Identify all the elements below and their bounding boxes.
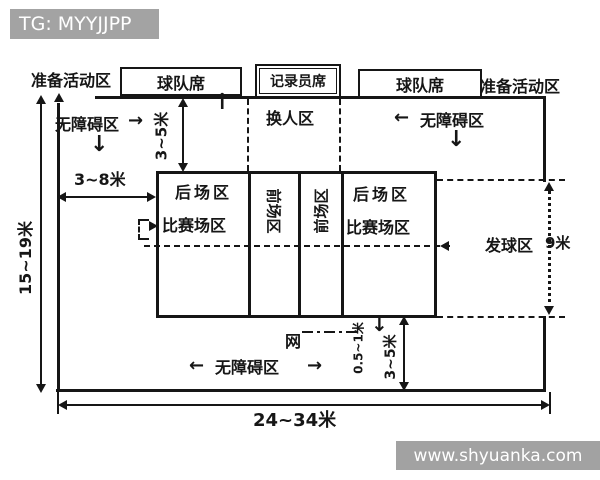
side-freezone-dimension-label: 3~8米 (74, 166, 126, 190)
axis-arrow-right-icon (440, 241, 449, 251)
side-freezone-dimension-line (60, 196, 154, 198)
watermark-bar: www.shyuanka.com (396, 441, 600, 470)
length-dimension-label: 24~34米 (247, 406, 342, 432)
service-zone-dashed-top (437, 179, 565, 181)
playing-court-label-right: 比赛场区 (346, 214, 410, 238)
side-dim-arrow-right-icon (147, 192, 156, 202)
front-zone-label-left: 前场区 (264, 188, 285, 233)
court-axis-dashed-line (144, 245, 450, 247)
outer-boundary-bottom (56, 389, 546, 392)
bottom-dim-arrow-up-icon (399, 316, 409, 325)
side-dim-arrow-left-icon (57, 192, 66, 202)
outer-boundary-left (57, 103, 60, 391)
outer-boundary-right-lower (543, 316, 546, 392)
free-zone-label-bottom: 无障碍区 (215, 354, 279, 378)
width-dimension-arrow-top-icon (36, 95, 46, 104)
bottom-dim-arrow-down-icon (399, 382, 409, 391)
front-zone-label-right: 前场区 (311, 188, 332, 233)
service-dim-arrow-up-icon (544, 182, 554, 191)
substitution-zone-line-right (339, 99, 341, 171)
substitution-zone-line-left (247, 99, 249, 171)
corner-down-arrow-icon: ↓ (371, 312, 388, 336)
length-dim-arrow-right-icon (541, 400, 550, 410)
scorer-table-box: 记录员席 (255, 64, 341, 98)
service-zone-label: 发球区 (485, 232, 533, 256)
free-zone-label-left: 无障碍区 (55, 111, 119, 135)
boundary-corner-arrow-icon (54, 93, 64, 102)
team-bench-label-right: 球队席 (396, 72, 444, 96)
scorer-table-label: 记录员席 (259, 68, 337, 94)
right-arrow-icon: → (128, 110, 143, 131)
back-zone-label-right: 后场区 (353, 181, 410, 205)
net-label: 网 (285, 328, 301, 352)
top-dim-arrow-up-icon (178, 98, 188, 107)
bottom-freezone-dimension-label: 3~5米 (380, 334, 400, 379)
service-zone-dashed-bottom (437, 316, 565, 318)
title-bar: TG: MYYJJPP (10, 9, 159, 39)
length-dim-arrow-left-icon (58, 400, 67, 410)
back-zone-label-left: 后场区 (175, 179, 232, 203)
bench-pointer-arrow-icon: ↑ (213, 90, 231, 115)
top-freezone-dimension-line (182, 102, 184, 170)
down-arrow-left-icon: ↓ (90, 132, 108, 157)
outer-boundary-top (95, 96, 545, 99)
axis-arrow-left-icon (149, 221, 158, 231)
service-dim-arrow-down-icon (544, 306, 554, 315)
warmup-area-label-left: 准备活动区 (31, 67, 111, 91)
playing-court-label-left: 比赛场区 (162, 212, 226, 236)
axis-bracket-left (138, 219, 149, 240)
top-freezone-dimension-label: 3~5米 (151, 112, 172, 160)
net-overhang-label: 0.5~1米 (350, 322, 367, 374)
substitution-zone-label: 换人区 (266, 105, 314, 129)
bottom-freezone-dimension-line (403, 321, 405, 387)
width-dimension-label: 15~19米 (12, 221, 36, 295)
team-bench-label-left: 球队席 (157, 70, 205, 94)
left-arrow-icon: ← (394, 107, 409, 128)
width-dimension-arrow-bottom-icon (36, 384, 46, 393)
team-bench-box-right: 球队席 (358, 69, 482, 98)
service-depth-label: 9米 (545, 232, 570, 253)
warmup-area-label-right: 准备活动区 (480, 73, 560, 97)
down-arrow-right-icon: ↓ (447, 127, 465, 152)
bottom-right-arrow-icon: → (307, 355, 322, 376)
width-dimension-line (40, 103, 42, 385)
bottom-left-arrow-icon: ← (189, 355, 204, 376)
outer-boundary-right-upper (543, 96, 546, 182)
